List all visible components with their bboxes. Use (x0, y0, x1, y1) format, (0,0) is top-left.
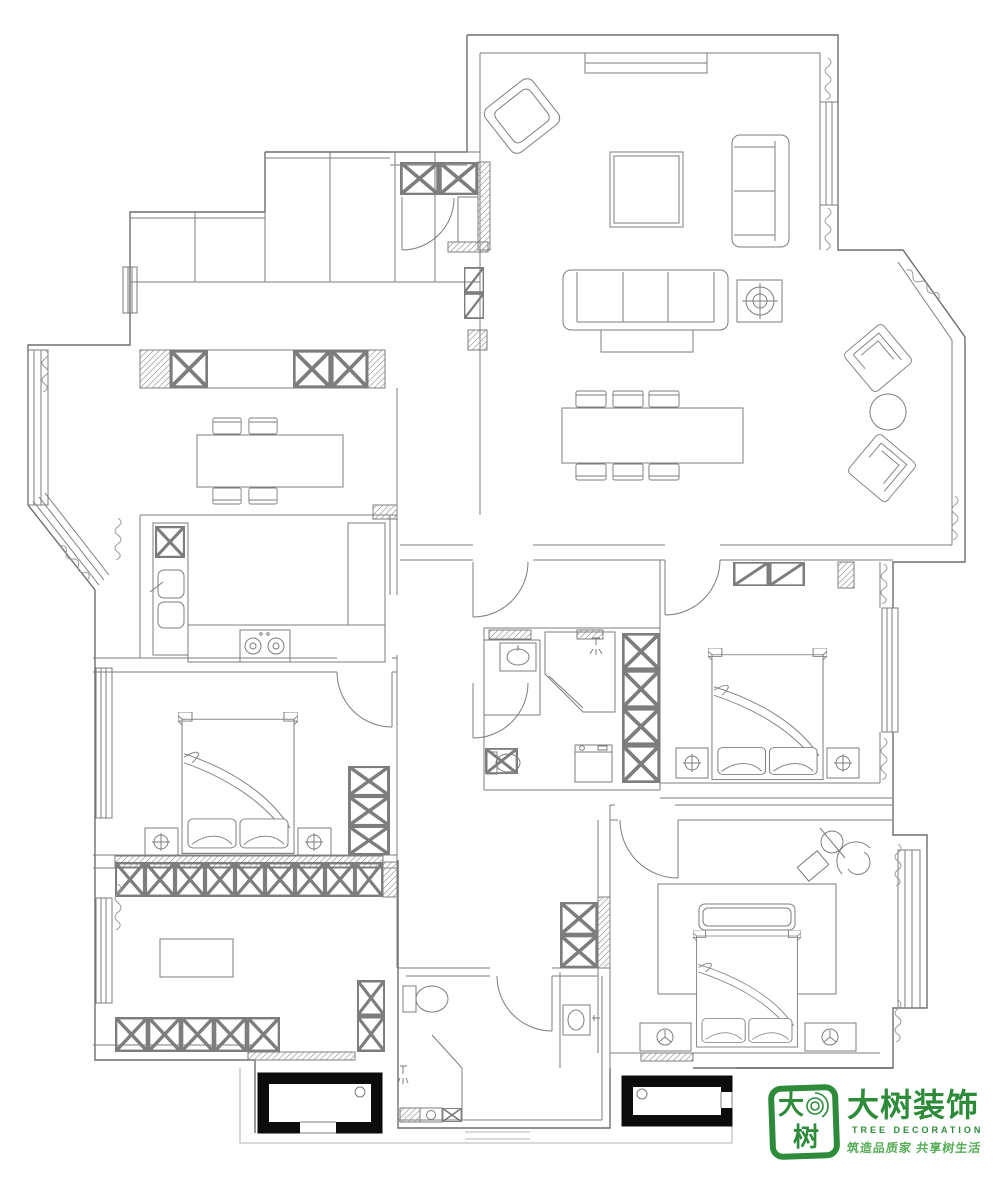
platforms (258, 1073, 732, 1133)
nightstand-right (805, 1023, 856, 1051)
coffee-table (610, 152, 683, 227)
brand-stamp: 大 树 (768, 1082, 840, 1160)
entry-mat (458, 197, 478, 242)
brand-wordmark: 大树装饰 TREE DECORATION 筑造品质家 共享树生活 (847, 1088, 988, 1156)
plan-lines (28, 35, 965, 1143)
door-bathroom1 (473, 683, 528, 738)
living-room (481, 75, 917, 503)
sink (150, 570, 184, 628)
floor-plan-drawing (0, 0, 1000, 1183)
counter-right (348, 523, 385, 625)
nightstand-right (827, 748, 859, 778)
seal-char-bottom: 树 (793, 1122, 819, 1152)
bathroom-south (398, 986, 600, 1122)
vanity-corner (797, 828, 870, 881)
washing-machine (575, 745, 612, 782)
seal-char-top: 大 (778, 1090, 804, 1120)
shower (398, 1035, 462, 1120)
curtain-box-living (585, 53, 707, 73)
floor-plan-page: 大 树 大树装饰 TREE DECORATION 筑造品质家 共享树生活 (0, 0, 1000, 1183)
bedroom-east (676, 648, 859, 780)
kitchen (150, 523, 385, 662)
nightstand-left (145, 828, 178, 856)
nightstand-right (298, 828, 331, 856)
window-living-right (820, 102, 838, 205)
brand-slogan: 筑造品质家 共享树生活 (846, 1139, 989, 1156)
brand-name-english-row: TREE DECORATION (847, 1125, 988, 1135)
door-entry (402, 197, 454, 250)
toilet (403, 986, 448, 1012)
bay-window-master (898, 850, 920, 1008)
side-table-lamp (737, 280, 782, 322)
counter-bottom (188, 625, 385, 662)
platform-west (258, 1073, 382, 1133)
nightstand-left (676, 748, 708, 778)
stove (240, 630, 290, 662)
brand-logo: 大 树 大树装饰 TREE DECORATION 筑造品质家 共享树生活 (768, 1082, 996, 1168)
vanity-sink (563, 1005, 600, 1035)
bed (706, 648, 829, 780)
window-bedroom1-left (96, 668, 112, 818)
bed (176, 712, 300, 853)
bay-window-bedroom2 (882, 608, 898, 732)
door-bathroom2 (497, 976, 552, 1031)
dining-west (197, 418, 343, 504)
headboard-bench (699, 904, 795, 930)
door-bedroom2 (665, 560, 720, 615)
round-table (870, 394, 906, 430)
tree-ring-icon (807, 1093, 828, 1117)
study (160, 939, 233, 977)
door-bedroom1 (337, 672, 392, 727)
inner-walls (93, 53, 952, 1143)
bedroom-master (640, 828, 870, 1051)
brand-name-chinese: 大树装饰 (847, 1088, 988, 1122)
rug (160, 939, 233, 977)
bedroom-west (145, 712, 331, 856)
door-corridor (473, 562, 528, 617)
coffee-table-inner (614, 156, 679, 223)
vanity-sink (500, 643, 536, 671)
window-study-left (96, 898, 112, 1003)
sofa-three-seat (563, 270, 728, 352)
shower (545, 632, 615, 712)
dining-main (562, 391, 743, 480)
loveseat (732, 135, 789, 247)
corner-leisure (843, 323, 918, 504)
platform-south (622, 1076, 732, 1126)
bathroom-center (487, 632, 615, 782)
nightstand-left (640, 1023, 691, 1051)
bed (691, 930, 803, 1047)
armchair-diagonal (481, 75, 563, 156)
outer-walls (28, 35, 965, 1133)
brand-name-english: TREE DECORATION (852, 1125, 983, 1135)
side-table (797, 851, 828, 882)
door-master (620, 820, 678, 878)
window-left-diagonal (33, 493, 109, 585)
window-left-top (28, 350, 48, 505)
